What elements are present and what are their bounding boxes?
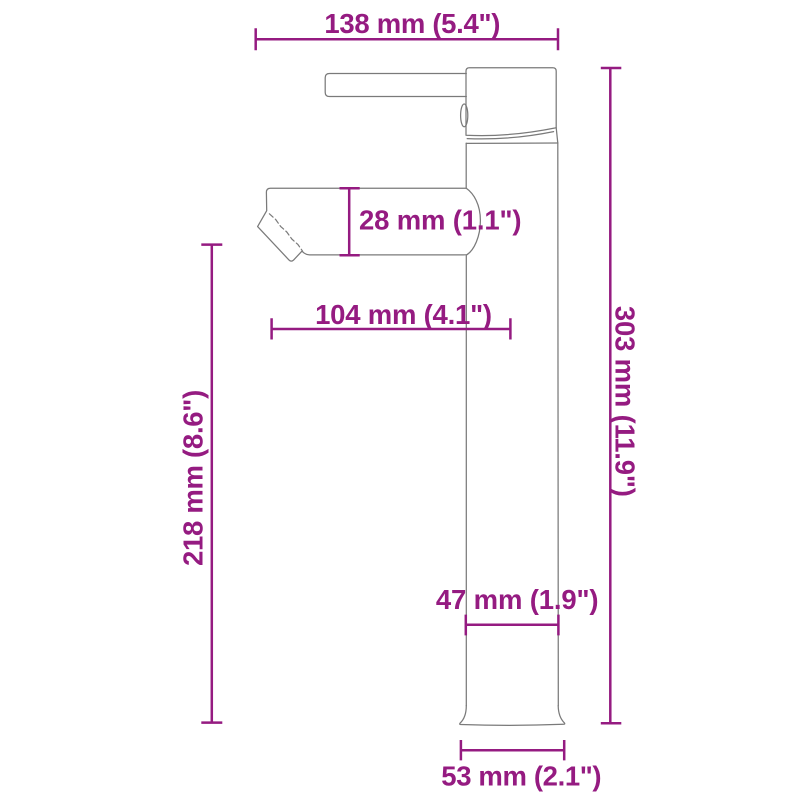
svg-text:53 mm (2.1"): 53 mm (2.1") (441, 761, 601, 792)
svg-text:28 mm (1.1"): 28 mm (1.1") (359, 205, 522, 236)
svg-text:47 mm (1.9"): 47 mm (1.9") (436, 584, 599, 615)
svg-text:303 mm (11.9"): 303 mm (11.9") (610, 306, 641, 497)
svg-text:218 mm (8.6"): 218 mm (8.6") (178, 390, 209, 566)
svg-text:138 mm (5.4"): 138 mm (5.4") (324, 8, 500, 39)
svg-text:104 mm (4.1"): 104 mm (4.1") (315, 299, 492, 330)
